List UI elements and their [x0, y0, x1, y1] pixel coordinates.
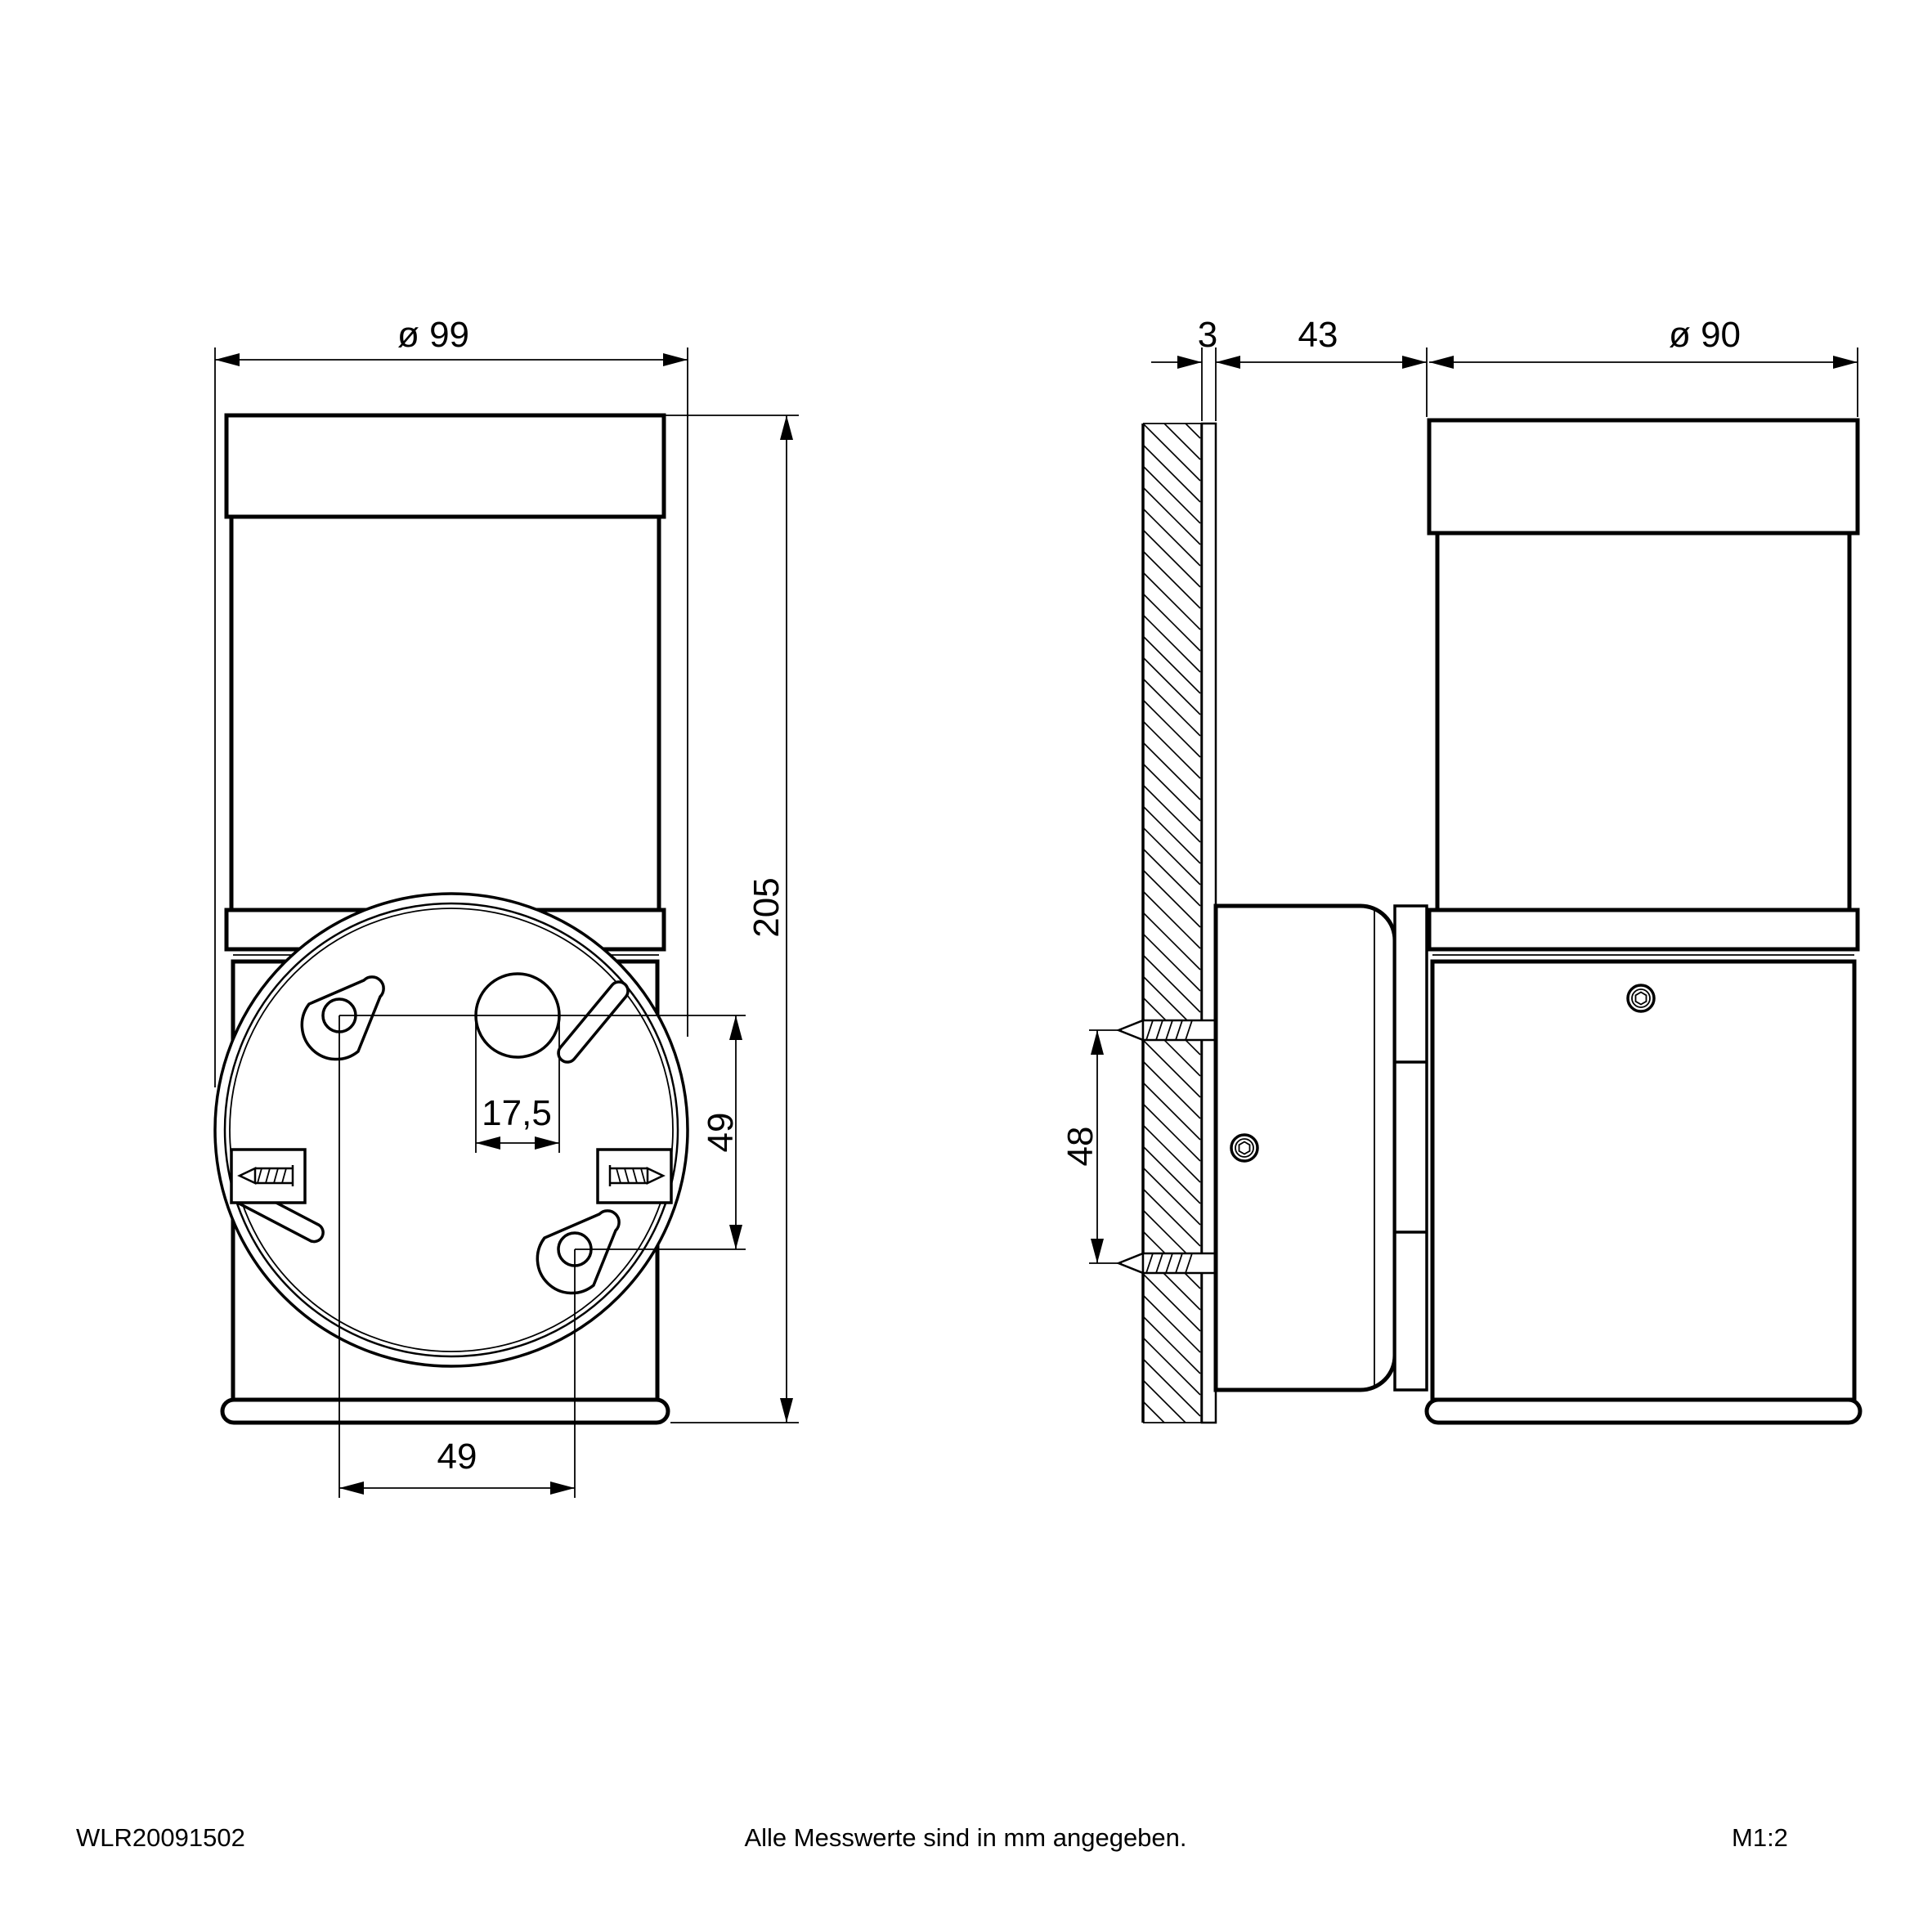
- dim-height: 205: [664, 415, 799, 1423]
- dim-label-cable-hole: 17,5: [482, 1093, 552, 1133]
- dim-label-box-depth: 43: [1298, 315, 1338, 355]
- dim-label-lamp-diameter: ø 90: [1669, 315, 1741, 355]
- side-ring-band: [1429, 910, 1858, 949]
- dim-label-plate-diameter: ø 99: [397, 315, 469, 355]
- side-lower-housing: [1432, 962, 1854, 1400]
- dim-label-screw-spacing: 48: [1060, 1127, 1100, 1167]
- front-view: ø 99: [215, 315, 799, 1498]
- measurement-note: Alle Messwerte sind in mm angegeben.: [744, 1823, 1186, 1852]
- drawing-sheet: ø 99: [0, 0, 1932, 1932]
- mounting-box: [1216, 906, 1395, 1390]
- side-lamp-body: [1427, 420, 1860, 1423]
- dim-label-keyhole-spacing-horizontal: 49: [437, 1437, 477, 1477]
- mounting-plate: [215, 894, 688, 1366]
- footer: WLR20091502 Alle Messwerte sind in mm an…: [76, 1823, 1788, 1852]
- drawing-scale: M1:2: [1732, 1823, 1788, 1852]
- dim-lamp-diameter: ø 90: [1429, 315, 1858, 417]
- dim-screw-spacing: 48: [1060, 1030, 1122, 1263]
- dim-backplate-thickness: 3: [1151, 315, 1217, 421]
- side-cap: [1429, 420, 1858, 533]
- dim-label-keyhole-spacing-vertical: 49: [701, 1113, 741, 1153]
- side-bottom-lip: [1427, 1400, 1860, 1423]
- side-view: 48: [1060, 315, 1860, 1423]
- dim-label-backplate-thickness: 3: [1198, 315, 1217, 355]
- dim-label-height: 205: [746, 877, 787, 937]
- clip-left: [231, 1150, 305, 1203]
- bracket-strip: [1395, 906, 1427, 1390]
- article-number: WLR20091502: [76, 1823, 245, 1852]
- front-bottom-lip: [222, 1400, 668, 1423]
- dim-box-depth: 43: [1216, 315, 1427, 417]
- wall-screw-bottom: [1118, 1253, 1216, 1273]
- wall-screw-top: [1118, 1020, 1216, 1040]
- front-cap: [226, 415, 664, 517]
- technical-drawing: ø 99: [0, 0, 1932, 1932]
- clip-right: [598, 1150, 671, 1203]
- front-diffuser-tube: [231, 517, 659, 910]
- mounting-plate-outer-rim: [215, 894, 688, 1366]
- side-diffuser-tube: [1437, 533, 1849, 910]
